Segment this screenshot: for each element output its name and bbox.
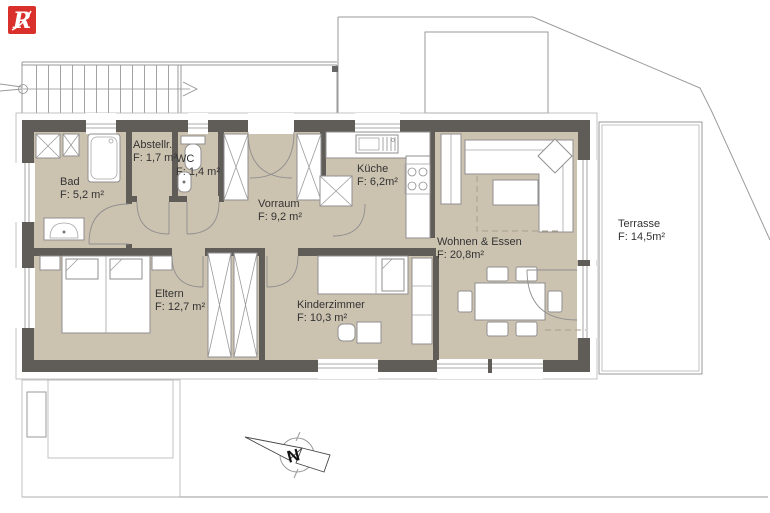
upper-deck [425,32,548,113]
room-area: F: 9,2 m² [258,211,302,224]
room-label-vorraum: Vorraum F: 9,2 m² [258,198,302,223]
desk [357,322,381,343]
room-name: Bad [60,176,104,189]
lower-deck [22,380,180,497]
room-area: F: 6,2m² [357,176,398,189]
room-name: Vorraum [258,198,302,211]
bathtub [88,134,120,182]
room-name: Küche [357,163,398,176]
toilet [181,136,205,144]
room-name: Terrasse [618,218,665,231]
floorplan-canvas: N R Bad F: 5,2 m² Abstellr. F: 1,7 m² WC… [0,0,770,513]
room-label-wohnen-essen: Wohnen & Essen F: 20,8m² [437,236,522,261]
room-area: F: 10,3 m² [297,312,365,325]
brand-logo-icon: R [8,6,36,34]
north-arrow: N [245,432,330,478]
room-area: F: 5,2 m² [60,189,104,202]
room-area: F: 14,5m² [618,231,665,244]
room-label-kueche: Küche F: 6,2m² [357,163,398,188]
room-name: Abstellr. [133,139,177,152]
room-area: F: 1,4 m² [176,166,220,179]
external-staircase [19,62,339,113]
room-label-kinderzimmer: Kinderzimmer F: 10,3 m² [297,299,365,324]
room-label-wc: WC F: 1,4 m² [176,153,220,178]
terrace-deck [599,122,702,374]
room-name: Eltern [155,288,205,301]
coffee-table [493,180,538,205]
room-area: F: 20,8m² [437,249,522,262]
room-name: Wohnen & Essen [437,236,522,249]
room-name: Kinderzimmer [297,299,365,312]
room-label-abstellraum: Abstellr. F: 1,7 m² [133,139,177,164]
room-area: F: 1,7 m² [133,152,177,165]
room-label-eltern: Eltern F: 12,7 m² [155,288,205,313]
room-label-terrasse: Terrasse F: 14,5m² [618,218,665,243]
nightstand [40,256,60,270]
logo-letter: R [12,8,31,34]
room-area: F: 12,7 m² [155,301,205,314]
wardrobe [412,258,432,344]
nightstand [152,256,172,270]
room-name: WC [176,153,220,166]
desk-chair [338,324,355,341]
room-label-bad: Bad F: 5,2 m² [60,176,104,201]
floorplan-drawing: N R [0,0,770,513]
